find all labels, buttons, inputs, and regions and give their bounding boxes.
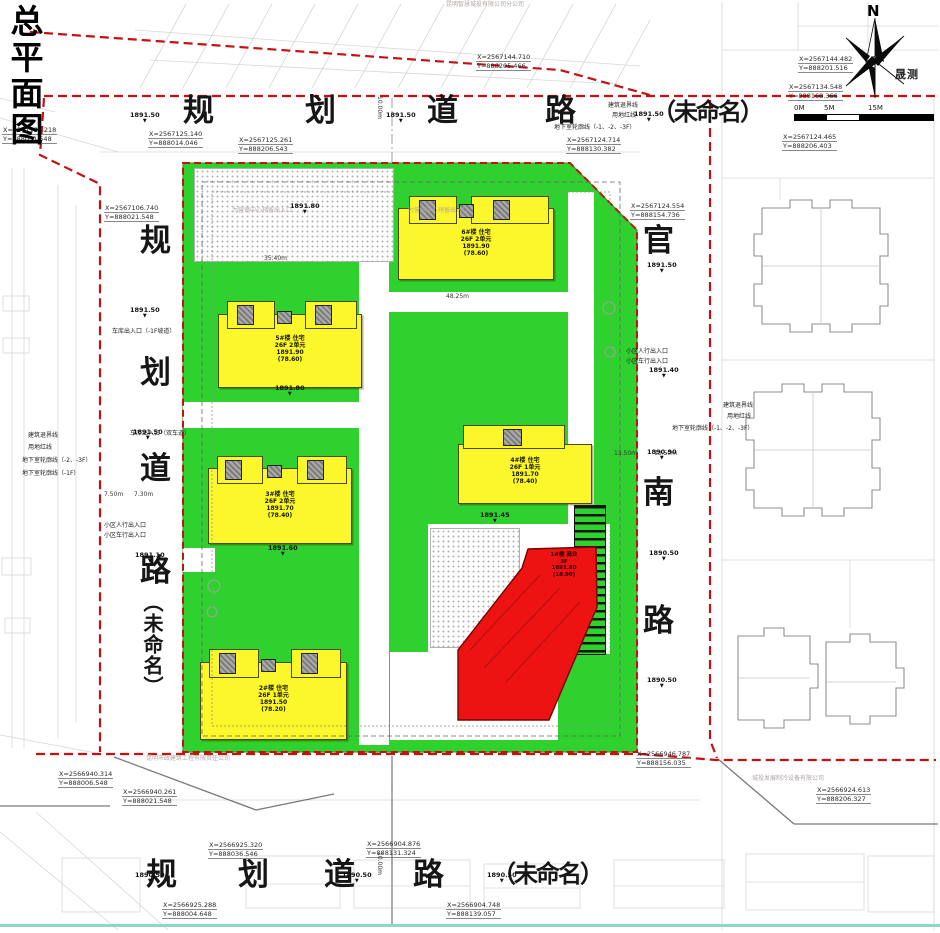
dimension-label: 35.40m	[264, 256, 287, 262]
dimension-label: 13.50m	[654, 451, 677, 457]
coordinate-callout: X=2566904.748Y=888139.057	[446, 901, 501, 919]
elevation-label: 1891.80	[290, 203, 320, 215]
annotation-label: 用地红线	[727, 413, 751, 420]
coordinate-callout: X=2567134.548Y=888168.366	[788, 83, 843, 101]
scale-segment	[794, 114, 826, 121]
sheet-border-line	[0, 924, 940, 927]
road-name-char: 规	[140, 226, 171, 257]
road-name-char: 划	[140, 358, 171, 389]
coordinate-callout: X=2567124.714Y=888130.382	[566, 136, 621, 154]
compass-icon	[846, 18, 904, 98]
annotation-label: 建筑退界线	[723, 402, 753, 409]
scale-bar-labels: 0M 5M 15M	[794, 104, 934, 113]
annotation-label: 车库出入口（-1F坡道）	[112, 328, 175, 335]
annotation-label: 小区人行出入口	[104, 522, 146, 529]
faint-company-text: 为营销中心预留出入口	[232, 208, 292, 214]
coordinate-callout: X=2566946.787Y=888156.035	[636, 750, 691, 768]
coordinate-callout: X=2567144.482Y=888201.516	[798, 55, 853, 73]
road-name-char: 道	[140, 454, 171, 485]
road-name-char: 道	[427, 96, 458, 127]
elevation-label: 1890.50	[135, 872, 165, 884]
faint-company-text: 昆明智慧城投有限公司分公司	[446, 2, 524, 8]
elevation-label: 1890.50	[649, 550, 679, 562]
scale-segment	[860, 114, 934, 121]
coordinate-callout: X=2567125.261Y=888206.543	[238, 136, 293, 154]
scale-tick-5: 5M	[824, 104, 835, 112]
annotation-label: 小区人行出入口	[626, 348, 668, 355]
coordinate-callout: X=2566925.320Y=888036.546	[208, 841, 263, 859]
coordinate-callout: X=2567144.710Y=888205.466	[476, 53, 531, 71]
scale-tick-0: 0M	[794, 104, 805, 112]
elevation-label: 1891.45	[480, 512, 510, 524]
road-name-char: 官	[643, 226, 674, 257]
annotation-label: 小区车行出入口	[626, 358, 668, 365]
annotation-label: 小区车行出入口	[104, 532, 146, 539]
scale-bar: 0M 5M 15M	[794, 104, 934, 121]
annotation-label: 地下室轮廓线（-1、-2、-3F）	[672, 425, 753, 432]
annotation-label: 车库出入口（双车道）	[130, 430, 190, 437]
faint-company-text: 城投发展制冷设备有限公司	[752, 776, 824, 782]
page-title: 总平面图	[8, 4, 41, 148]
north-label: N	[867, 2, 880, 20]
dimension-label: 48.25m	[446, 294, 469, 300]
site-plan-drawing: 6#楼 住宅26F 2单元 1891.90(78.60) 5#楼 住宅26F 2…	[0, 0, 940, 933]
dimension-label: 10.00m	[376, 96, 382, 119]
coordinate-callout: X=2566924.613Y=888206.327	[816, 786, 871, 804]
elevation-label: 1890.50	[342, 872, 372, 884]
scale-tick-15: 15M	[868, 104, 883, 112]
elevation-label: 1891.80	[275, 385, 305, 397]
annotation-label: 用地红线	[28, 444, 52, 451]
annotation-label: 地下室轮廓线（-1、-2、-3F）	[554, 124, 635, 131]
dimension-label: 10.00m	[376, 852, 382, 875]
coordinate-callout: X=2566925.288Y=888004.648	[162, 901, 217, 919]
road-name-char: 划	[238, 860, 269, 891]
scale-bar-segments	[794, 114, 934, 121]
coordinate-callout: X=2567124.465Y=888206.403	[782, 133, 837, 151]
annotation-label: 建筑退界线	[28, 432, 58, 439]
elevation-label: 1890.50	[647, 677, 677, 689]
elevation-label: 1891.60	[268, 545, 298, 557]
road-name-char: 南	[643, 478, 674, 509]
coordinate-callout: X=2567106.740Y=888021.548	[104, 204, 159, 222]
road-name-char: 划	[305, 96, 336, 127]
building-1-label: 1#楼 商业3F 1891.80(18.90)	[529, 552, 599, 578]
faint-company-text: 昆明市政建筑工程有限责任公司	[146, 756, 230, 762]
dimension-label: 7.30m	[134, 492, 153, 498]
road-name-char: （未命名）	[652, 100, 762, 124]
surveyor-mark: 晟测	[895, 66, 919, 82]
coordinate-callout: X=2566940.314Y=888006.548	[58, 770, 113, 788]
road-name-char: （未命名）	[142, 592, 162, 697]
elevation-label: 1891.50	[634, 111, 664, 123]
coordinate-callout: X=2567124.554Y=888154.736	[630, 202, 685, 220]
elevation-label: 1891.50	[130, 112, 160, 124]
elevation-label: 1891.10	[135, 552, 165, 564]
elevation-label: 1891.50	[386, 112, 416, 124]
dimension-label: 13.50m	[614, 451, 637, 457]
road-name-char: 路	[413, 860, 444, 891]
elevation-label: 1891.40	[649, 367, 679, 379]
road-name-char: 路	[643, 606, 674, 637]
road-name-char: 路	[545, 96, 576, 127]
elevation-label: 1890.50	[487, 872, 517, 884]
elevation-label: 1891.50	[130, 307, 160, 319]
annotation-label: 建筑退界线	[608, 102, 638, 109]
elevation-label: 1891.50	[647, 262, 677, 274]
annotation-label: 用地红线	[612, 112, 636, 119]
annotation-label: 地下室轮廓线（-2、-3F）	[22, 457, 91, 464]
road-name-char: 规	[183, 96, 214, 127]
annotation-label: 地下室轮廓线（-1F）	[22, 470, 79, 477]
scale-segment	[826, 114, 860, 121]
faint-company-text: 为营销中心预留出入口	[408, 208, 468, 214]
dimension-label: 7.50m	[104, 492, 123, 498]
coordinate-callout: X=2566904.876Y=888131.324	[366, 840, 421, 858]
coordinate-callout: X=2566940.261Y=888021.548	[122, 788, 177, 806]
coordinate-callout: X=2567125.140Y=888014.046	[148, 130, 203, 148]
